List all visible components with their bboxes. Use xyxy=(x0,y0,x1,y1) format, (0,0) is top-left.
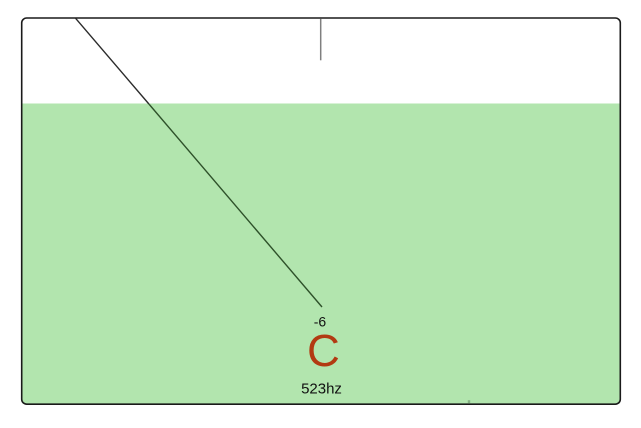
svg-text:523hz: 523hz xyxy=(301,381,342,398)
svg-text:C: C xyxy=(307,325,340,376)
